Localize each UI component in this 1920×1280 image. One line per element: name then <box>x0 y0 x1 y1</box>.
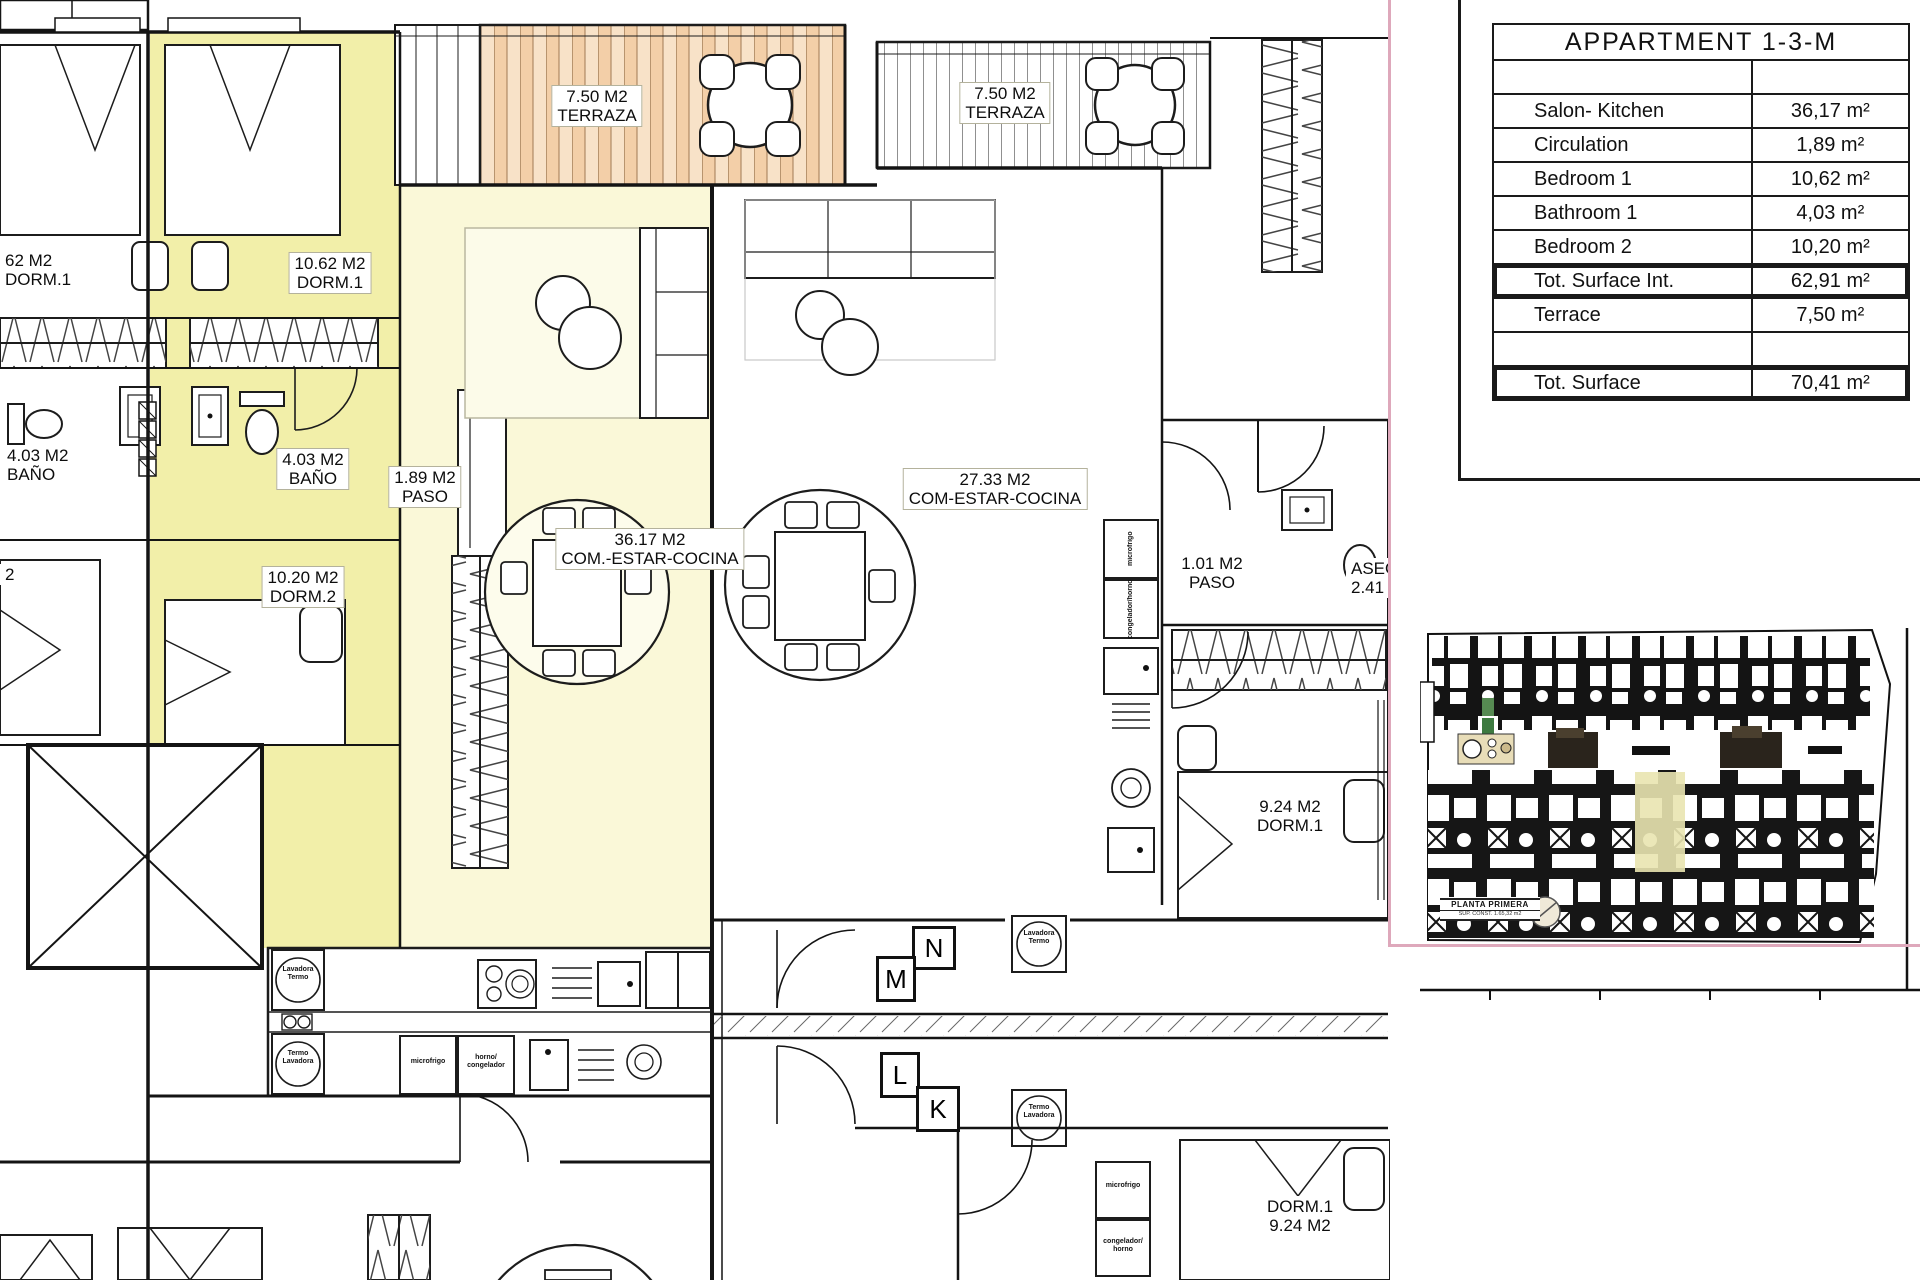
label-bano-left: 4.03 M2BAÑO <box>2 445 73 485</box>
table-row: Bedroom 1 10,62 m² <box>1494 163 1908 197</box>
floorplan-sheet: { "apartment_table": { "title": "APPARTM… <box>0 0 1920 1280</box>
label-paso-n: 1.01 M2PASO <box>1176 553 1247 593</box>
floor-plan: 7.50 M2TERRAZA 7.50 M2TERRAZA 62 M2DORM.… <box>0 0 1390 1280</box>
unit-m-kitchen <box>268 948 712 1096</box>
table-row: Terrace 7,50 m² <box>1494 299 1908 333</box>
floor-plan-drawing <box>0 0 1390 1280</box>
table-row-empty <box>1494 61 1908 95</box>
label-dorm2-left-fragment: 2 <box>0 564 19 585</box>
label-dorm1-left: 62 M2DORM.1 <box>0 250 76 290</box>
label-washer-n: LavadoraTermo <box>1014 930 1064 946</box>
sheet-border-vertical <box>1458 0 1461 478</box>
label-aseo-n: ASEO2.41 M <box>1346 558 1390 598</box>
table-row: Bedroom 2 10,20 m² <box>1494 231 1908 265</box>
table-row-total-interior: Tot. Surface Int. 62,91 m² <box>1494 265 1908 299</box>
label-dorm1-n: 9.24 M2DORM.1 <box>1252 796 1328 836</box>
label-microfridge-m: microfrigo <box>402 1058 454 1066</box>
site-plan-title: PLANTA PRIMERA <box>1440 898 1540 911</box>
table-title: APPARTMENT 1-3-M <box>1494 25 1908 61</box>
elevator-core <box>28 745 262 968</box>
pink-section-line-vertical <box>1388 0 1391 944</box>
table-row: Bathroom 1 4,03 m² <box>1494 197 1908 231</box>
apartment-area-table: APPARTMENT 1-3-M Salon- Kitchen 36,17 m²… <box>1492 23 1910 401</box>
label-dorm2-m: 10.20 M2DORM.2 <box>262 566 345 608</box>
label-terrace-n: 7.50 M2TERRAZA <box>959 82 1050 124</box>
label-washer-m: LavadoraTermo <box>274 966 322 982</box>
label-paso-m: 1.89 M2PASO <box>388 466 461 508</box>
site-plan-outline <box>1420 630 1890 942</box>
label-dorm1-k: DORM.19.24 M2 <box>1262 1196 1338 1236</box>
label-microfridge-k: microfrigo <box>1098 1182 1148 1190</box>
unit-letter-n: N <box>912 926 956 970</box>
label-terrace-m: 7.50 M2TERRAZA <box>551 85 642 127</box>
label-washer-k: TermoLavadora <box>1014 1104 1064 1120</box>
site-plan-subtitle: SUP. CONST. 1.65,32 m2 <box>1440 911 1540 918</box>
unit-letter-m: M <box>876 956 916 1002</box>
label-freezer-n: congelador/horno <box>1106 584 1156 634</box>
table-row: Circulation 1,89 m² <box>1494 129 1908 163</box>
site-plan-caption: PLANTA PRIMERA SUP. CONST. 1.65,32 m2 <box>1440 897 1540 921</box>
table-row-empty <box>1494 333 1908 367</box>
label-washer2-m: TermoLavadora <box>274 1050 322 1066</box>
label-living-m: 36.17 M2COM.-ESTAR-COCINA <box>555 528 744 570</box>
pink-section-line-horizontal <box>1388 944 1920 947</box>
label-living-n: 27.33 M2COM-ESTAR-COCINA <box>903 468 1088 510</box>
table-row-total-surface: Tot. Surface 70,41 m² <box>1494 367 1908 399</box>
label-microfridge-n: microfrigo <box>1106 524 1156 574</box>
unit-letter-l: L <box>880 1052 920 1098</box>
label-bano-m: 4.03 M2BAÑO <box>276 448 349 490</box>
sheet-border-horizontal <box>1458 478 1920 481</box>
label-dorm1-m: 10.62 M2DORM.1 <box>289 252 372 294</box>
label-freezer-k: congelador/horno <box>1098 1238 1148 1254</box>
unit-k-furniture <box>368 1090 1390 1280</box>
unit-letter-k: K <box>916 1086 960 1132</box>
label-oven-m: horno/congelador <box>460 1054 512 1070</box>
table-row: Salon- Kitchen 36,17 m² <box>1494 95 1908 129</box>
